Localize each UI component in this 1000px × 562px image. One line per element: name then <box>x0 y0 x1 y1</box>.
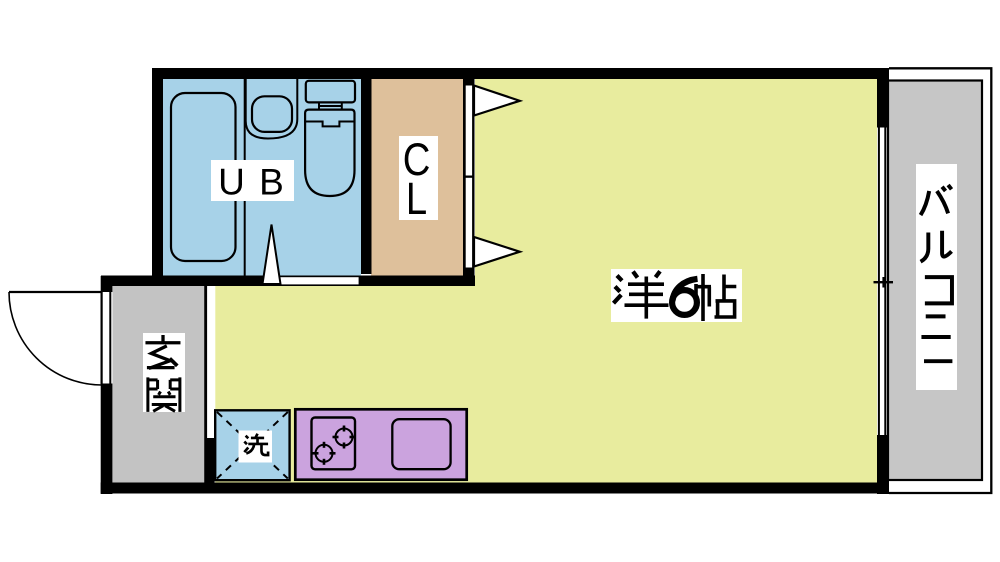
svg-text:U B: U B <box>218 162 286 203</box>
svg-text:L: L <box>406 173 427 224</box>
